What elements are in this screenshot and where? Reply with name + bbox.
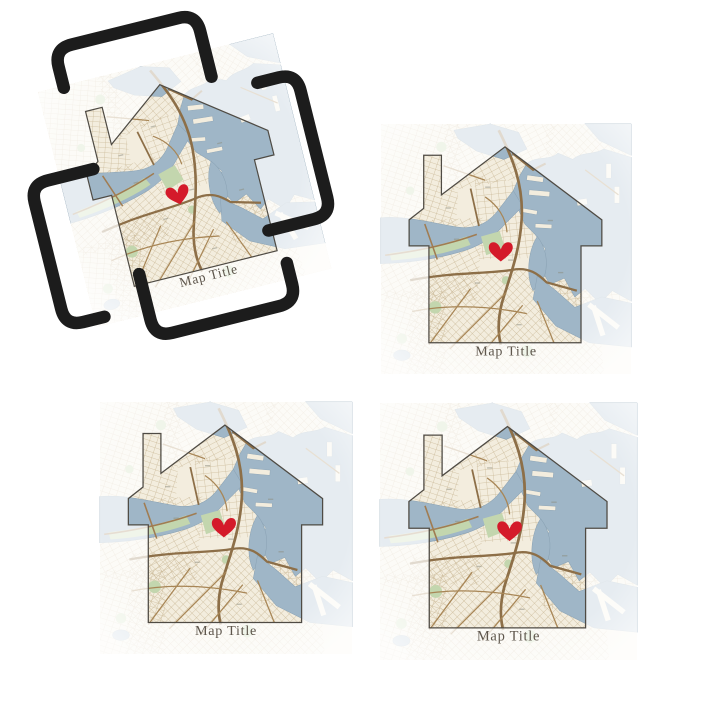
map-title-label: Map Title [477, 629, 540, 645]
coaster-card-top-right: Map Title [381, 124, 631, 374]
coaster-product-illustration: Map Title Map Title Map Title Map Title [0, 0, 720, 720]
map-title-label: Map Title [195, 623, 257, 639]
coaster-card-bottom-left: Map Title [100, 402, 352, 654]
map-title-label: Map Title [475, 343, 537, 359]
product-photo: Map Title Map Title Map Title Map Title [0, 0, 720, 720]
coaster-card-bottom-right: Map Title [380, 403, 637, 660]
coaster-holder-scene: Map Title [0, 0, 350, 357]
